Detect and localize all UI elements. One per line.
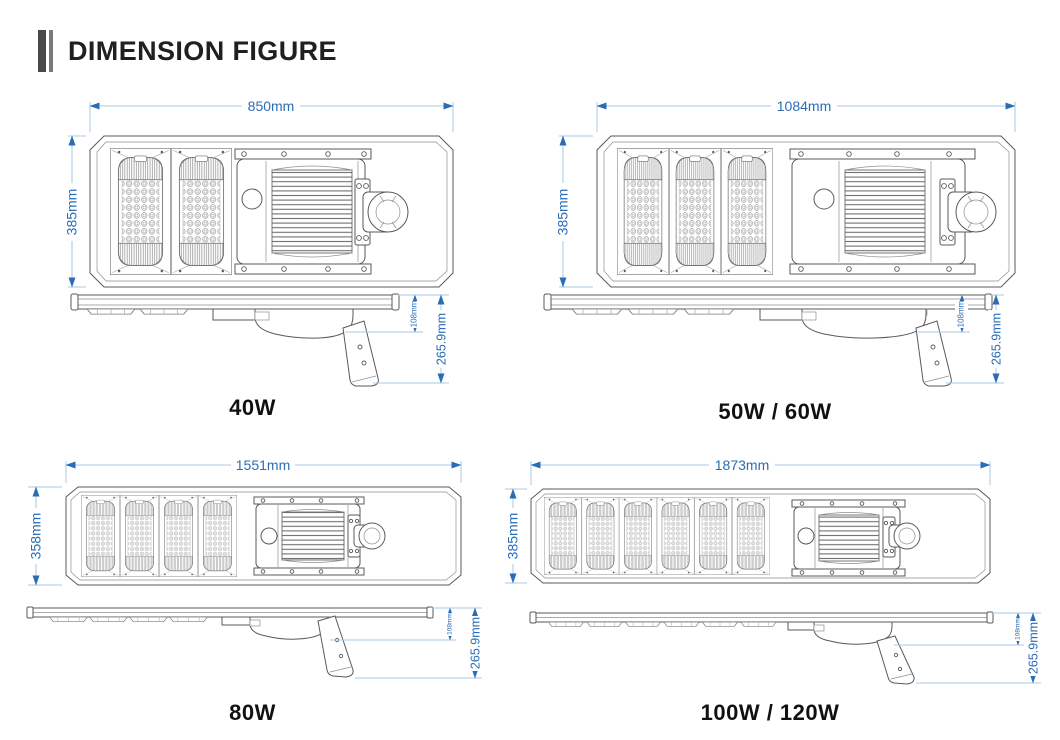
dim-width-80w: 1551mm bbox=[66, 457, 461, 483]
dim-total-label: 265.9mm bbox=[1027, 622, 1041, 674]
dim-drop-label: 108mm bbox=[957, 300, 966, 327]
dim-height-label: 385mm bbox=[555, 189, 571, 236]
dim-width-50w-60w: 1084mm bbox=[597, 98, 1015, 132]
accent-bar-thin bbox=[49, 30, 53, 72]
dim-width-label: 1084mm bbox=[777, 98, 831, 114]
dim-width-label: 1551mm bbox=[236, 457, 290, 473]
driver-section bbox=[235, 149, 408, 274]
mount-arm bbox=[877, 636, 914, 684]
dim-height-80w: 358mm bbox=[28, 487, 63, 585]
dim-total-80w: 265.9mm bbox=[355, 608, 483, 678]
top-view-40w: 850mm 385mm bbox=[58, 92, 478, 292]
dim-width-label: 850mm bbox=[248, 98, 295, 114]
dim-drop-label: 108mm bbox=[410, 300, 419, 327]
dim-width-100w-120w: 1873mm bbox=[531, 457, 990, 485]
side-view-80w: 108mm 265.9mm bbox=[20, 600, 500, 695]
top-view-100w-120w: 1873mm 385mm bbox=[497, 455, 1042, 605]
dim-width-40w: 850mm bbox=[90, 98, 453, 132]
side-view-50w-60w: 108mm 265.9mm bbox=[534, 287, 1014, 397]
dim-height-label: 385mm bbox=[64, 189, 80, 236]
dim-total-label: 265.9mm bbox=[990, 313, 1004, 365]
dim-drop-label: 108mm bbox=[446, 613, 453, 635]
mount-arm bbox=[343, 321, 378, 386]
dim-width-label: 1873mm bbox=[715, 457, 769, 473]
panel-label-100w-120w: 100W / 120W bbox=[530, 700, 1010, 726]
accent-bar-thick bbox=[38, 30, 46, 72]
side-view-100w-120w: 108mm 265.9mm bbox=[497, 605, 1042, 700]
page-title: DIMENSION FIGURE bbox=[68, 36, 337, 67]
dimension-figure-page: DIMENSION FIGURE bbox=[0, 0, 1060, 740]
dim-total-label: 265.9mm bbox=[469, 617, 483, 669]
page-header: DIMENSION FIGURE bbox=[38, 30, 337, 72]
top-view-50w-60w: 1084mm 385mm bbox=[549, 92, 1029, 292]
driver-section bbox=[790, 149, 996, 274]
dim-drop-label: 108mm bbox=[1014, 618, 1021, 640]
panel-label-50w-60w: 50W / 60W bbox=[555, 399, 995, 425]
side-view-40w: 108mm 265.9mm bbox=[57, 287, 477, 397]
driver-section bbox=[254, 497, 385, 575]
top-view-80w: 1551mm 358mm bbox=[20, 455, 500, 605]
mount-arm bbox=[916, 321, 951, 386]
driver-section bbox=[792, 500, 920, 576]
dim-height-100w-120w: 385mm bbox=[505, 489, 528, 583]
dim-total-label: 265.9mm bbox=[435, 313, 449, 365]
panel-label-80w: 80W bbox=[40, 700, 465, 726]
dim-height-40w: 385mm bbox=[64, 136, 87, 287]
dim-height-50w-60w: 385mm bbox=[555, 136, 594, 287]
dim-height-label: 358mm bbox=[28, 513, 44, 560]
panel-label-40w: 40W bbox=[60, 395, 445, 421]
dim-height-label: 385mm bbox=[505, 513, 521, 560]
